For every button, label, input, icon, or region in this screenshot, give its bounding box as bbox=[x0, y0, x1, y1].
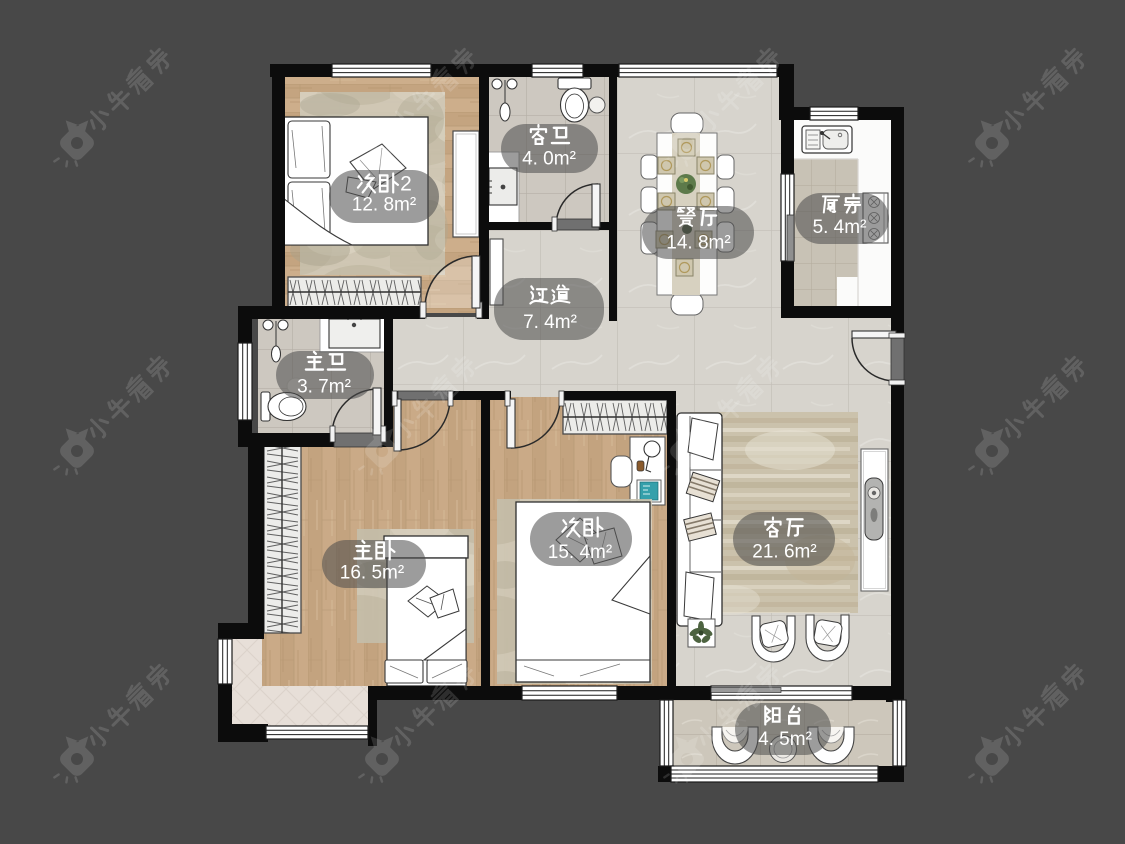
svg-text:2: 2 bbox=[400, 173, 412, 196]
svg-text:7. 4m²: 7. 4m² bbox=[523, 312, 577, 333]
svg-text:16. 5m²: 16. 5m² bbox=[340, 563, 404, 584]
svg-text:12. 8m²: 12. 8m² bbox=[352, 195, 416, 216]
svg-text:4. 5m²: 4. 5m² bbox=[758, 729, 812, 750]
svg-text:21. 6m²: 21. 6m² bbox=[752, 542, 816, 563]
svg-text:5. 4m²: 5. 4m² bbox=[813, 217, 867, 238]
svg-text:15. 4m²: 15. 4m² bbox=[548, 542, 612, 563]
svg-text:4. 0m²: 4. 0m² bbox=[522, 149, 576, 170]
svg-text:14. 8m²: 14. 8m² bbox=[666, 233, 730, 254]
svg-text:3. 7m²: 3. 7m² bbox=[297, 377, 351, 398]
